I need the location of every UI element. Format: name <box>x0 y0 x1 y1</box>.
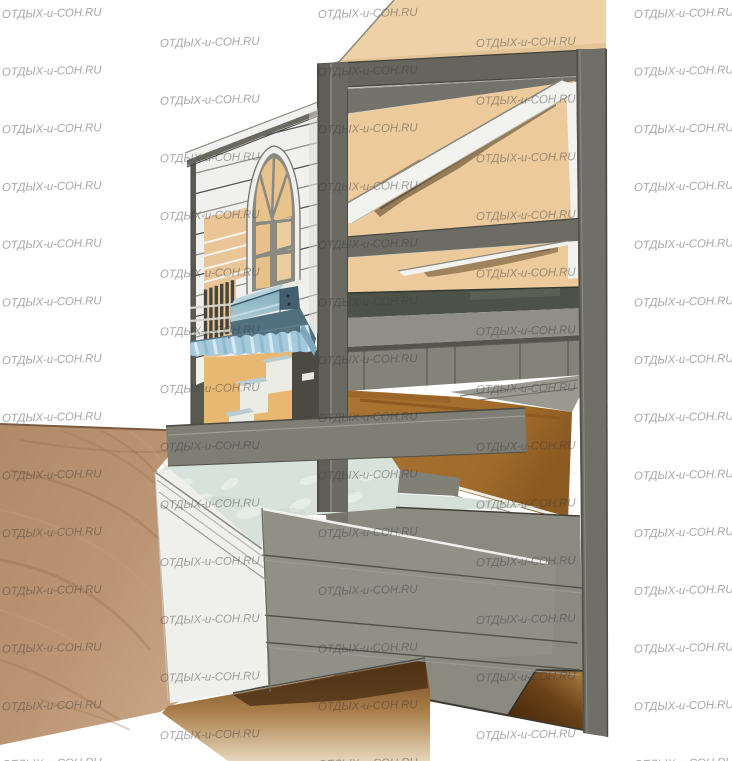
svg-text:ОТДЫХ-и-СОН.RU: ОТДЫХ-и-СОН.RU <box>2 238 103 252</box>
svg-text:ОТДЫХ-и-СОН.RU: ОТДЫХ-и-СОН.RU <box>2 64 103 78</box>
svg-text:ОТДЫХ-и-СОН.RU: ОТДЫХ-и-СОН.RU <box>2 411 103 425</box>
svg-text:ОТДЫХ-и-СОН.RU: ОТДЫХ-и-СОН.RU <box>318 641 419 655</box>
svg-text:ОТДЫХ-и-СОН.RU: ОТДЫХ-и-СОН.RU <box>634 526 732 540</box>
svg-text:ОТДЫХ-и-СОН.RU: ОТДЫХ-и-СОН.RU <box>476 324 577 338</box>
svg-text:ОТДЫХ-и-СОН.RU: ОТДЫХ-и-СОН.RU <box>2 468 103 482</box>
svg-text:ОТДЫХ-и-СОН.RU: ОТДЫХ-и-СОН.RU <box>634 180 732 194</box>
svg-text:ОТДЫХ-и-СОН.RU: ОТДЫХ-и-СОН.RU <box>318 526 419 540</box>
svg-text:ОТДЫХ-и-СОН.RU: ОТДЫХ-и-СОН.RU <box>634 584 732 598</box>
svg-text:ОТДЫХ-и-СОН.RU: ОТДЫХ-и-СОН.RU <box>634 122 732 136</box>
svg-text:ОТДЫХ-и-СОН.RU: ОТДЫХ-и-СОН.RU <box>318 7 419 21</box>
svg-text:ОТДЫХ-и-СОН.RU: ОТДЫХ-и-СОН.RU <box>160 440 261 454</box>
svg-text:ОТДЫХ-и-СОН.RU: ОТДЫХ-и-СОН.RU <box>634 468 732 482</box>
svg-text:ОТДЫХ-и-СОН.RU: ОТДЫХ-и-СОН.RU <box>160 728 261 742</box>
svg-text:ОТДЫХ-и-СОН.RU: ОТДЫХ-и-СОН.RU <box>476 440 577 454</box>
svg-text:ОТДЫХ-и-СОН.RU: ОТДЫХ-и-СОН.RU <box>160 36 261 50</box>
svg-text:ОТДЫХ-и-СОН.RU: ОТДЫХ-и-СОН.RU <box>160 93 261 107</box>
svg-text:ОТДЫХ-и-СОН.RU: ОТДЫХ-и-СОН.RU <box>160 324 261 338</box>
svg-text:ОТДЫХ-и-СОН.RU: ОТДЫХ-и-СОН.RU <box>634 238 732 252</box>
svg-text:ОТДЫХ-и-СОН.RU: ОТДЫХ-и-СОН.RU <box>476 209 577 223</box>
svg-text:ОТДЫХ-и-СОН.RU: ОТДЫХ-и-СОН.RU <box>476 93 577 107</box>
svg-text:ОТДЫХ-и-СОН.RU: ОТДЫХ-и-СОН.RU <box>634 64 732 78</box>
svg-text:ОТДЫХ-и-СОН.RU: ОТДЫХ-и-СОН.RU <box>634 353 732 367</box>
svg-text:ОТДЫХ-и-СОН.RU: ОТДЫХ-и-СОН.RU <box>634 699 732 713</box>
svg-text:ОТДЫХ-и-СОН.RU: ОТДЫХ-и-СОН.RU <box>2 353 103 367</box>
svg-text:ОТДЫХ-и-СОН.RU: ОТДЫХ-и-СОН.RU <box>2 699 103 713</box>
svg-text:ОТДЫХ-и-СОН.RU: ОТДЫХ-и-СОН.RU <box>2 295 103 309</box>
svg-text:ОТДЫХ-и-СОН.RU: ОТДЫХ-и-СОН.RU <box>318 584 419 598</box>
svg-text:ОТДЫХ-и-СОН.RU: ОТДЫХ-и-СОН.RU <box>476 151 577 165</box>
svg-text:ОТДЫХ-и-СОН.RU: ОТДЫХ-и-СОН.RU <box>160 151 261 165</box>
svg-text:ОТДЫХ-и-СОН.RU: ОТДЫХ-и-СОН.RU <box>476 670 577 684</box>
svg-text:ОТДЫХ-и-СОН.RU: ОТДЫХ-и-СОН.RU <box>160 670 261 684</box>
svg-text:ОТДЫХ-и-СОН.RU: ОТДЫХ-и-СОН.RU <box>160 209 261 223</box>
svg-text:ОТДЫХ-и-СОН.RU: ОТДЫХ-и-СОН.RU <box>476 728 577 742</box>
svg-text:ОТДЫХ-и-СОН.RU: ОТДЫХ-и-СОН.RU <box>2 526 103 540</box>
svg-text:ОТДЫХ-и-СОН.RU: ОТДЫХ-и-СОН.RU <box>476 267 577 281</box>
svg-text:ОТДЫХ-и-СОН.RU: ОТДЫХ-и-СОН.RU <box>476 497 577 511</box>
svg-text:ОТДЫХ-и-СОН.RU: ОТДЫХ-и-СОН.RU <box>476 555 577 569</box>
svg-text:ОТДЫХ-и-СОН.RU: ОТДЫХ-и-СОН.RU <box>160 382 261 396</box>
svg-text:ОТДЫХ-и-СОН.RU: ОТДЫХ-и-СОН.RU <box>318 238 419 252</box>
svg-text:ОТДЫХ-и-СОН.RU: ОТДЫХ-и-СОН.RU <box>318 180 419 194</box>
svg-text:ОТДЫХ-и-СОН.RU: ОТДЫХ-и-СОН.RU <box>160 267 261 281</box>
svg-text:ОТДЫХ-и-СОН.RU: ОТДЫХ-и-СОН.RU <box>634 295 732 309</box>
svg-text:ОТДЫХ-и-СОН.RU: ОТДЫХ-и-СОН.RU <box>476 36 577 50</box>
svg-text:ОТДЫХ-и-СОН.RU: ОТДЫХ-и-СОН.RU <box>160 555 261 569</box>
svg-text:ОТДЫХ-и-СОН.RU: ОТДЫХ-и-СОН.RU <box>634 411 732 425</box>
svg-text:ОТДЫХ-и-СОН.RU: ОТДЫХ-и-СОН.RU <box>2 584 103 598</box>
svg-text:ОТДЫХ-и-СОН.RU: ОТДЫХ-и-СОН.RU <box>476 613 577 627</box>
svg-text:ОТДЫХ-и-СОН.RU: ОТДЫХ-и-СОН.RU <box>318 122 419 136</box>
svg-text:ОТДЫХ-и-СОН.RU: ОТДЫХ-и-СОН.RU <box>318 295 419 309</box>
svg-text:ОТДЫХ-и-СОН.RU: ОТДЫХ-и-СОН.RU <box>160 497 261 511</box>
svg-text:ОТДЫХ-и-СОН.RU: ОТДЫХ-и-СОН.RU <box>160 613 261 627</box>
svg-text:ОТДЫХ-и-СОН.RU: ОТДЫХ-и-СОН.RU <box>634 641 732 655</box>
svg-text:ОТДЫХ-и-СОН.RU: ОТДЫХ-и-СОН.RU <box>318 64 419 78</box>
svg-text:ОТДЫХ-и-СОН.RU: ОТДЫХ-и-СОН.RU <box>318 353 419 367</box>
svg-text:ОТДЫХ-и-СОН.RU: ОТДЫХ-и-СОН.RU <box>2 180 103 194</box>
svg-text:ОТДЫХ-и-СОН.RU: ОТДЫХ-и-СОН.RU <box>318 699 419 713</box>
svg-text:ОТДЫХ-и-СОН.RU: ОТДЫХ-и-СОН.RU <box>2 122 103 136</box>
svg-text:ОТДЫХ-и-СОН.RU: ОТДЫХ-и-СОН.RU <box>476 382 577 396</box>
svg-text:ОТДЫХ-и-СОН.RU: ОТДЫХ-и-СОН.RU <box>634 7 732 21</box>
svg-text:ОТДЫХ-и-СОН.RU: ОТДЫХ-и-СОН.RU <box>318 468 419 482</box>
svg-text:ОТДЫХ-и-СОН.RU: ОТДЫХ-и-СОН.RU <box>2 641 103 655</box>
svg-text:ОТДЫХ-и-СОН.RU: ОТДЫХ-и-СОН.RU <box>318 411 419 425</box>
svg-text:ОТДЫХ-и-СОН.RU: ОТДЫХ-и-СОН.RU <box>2 7 103 21</box>
